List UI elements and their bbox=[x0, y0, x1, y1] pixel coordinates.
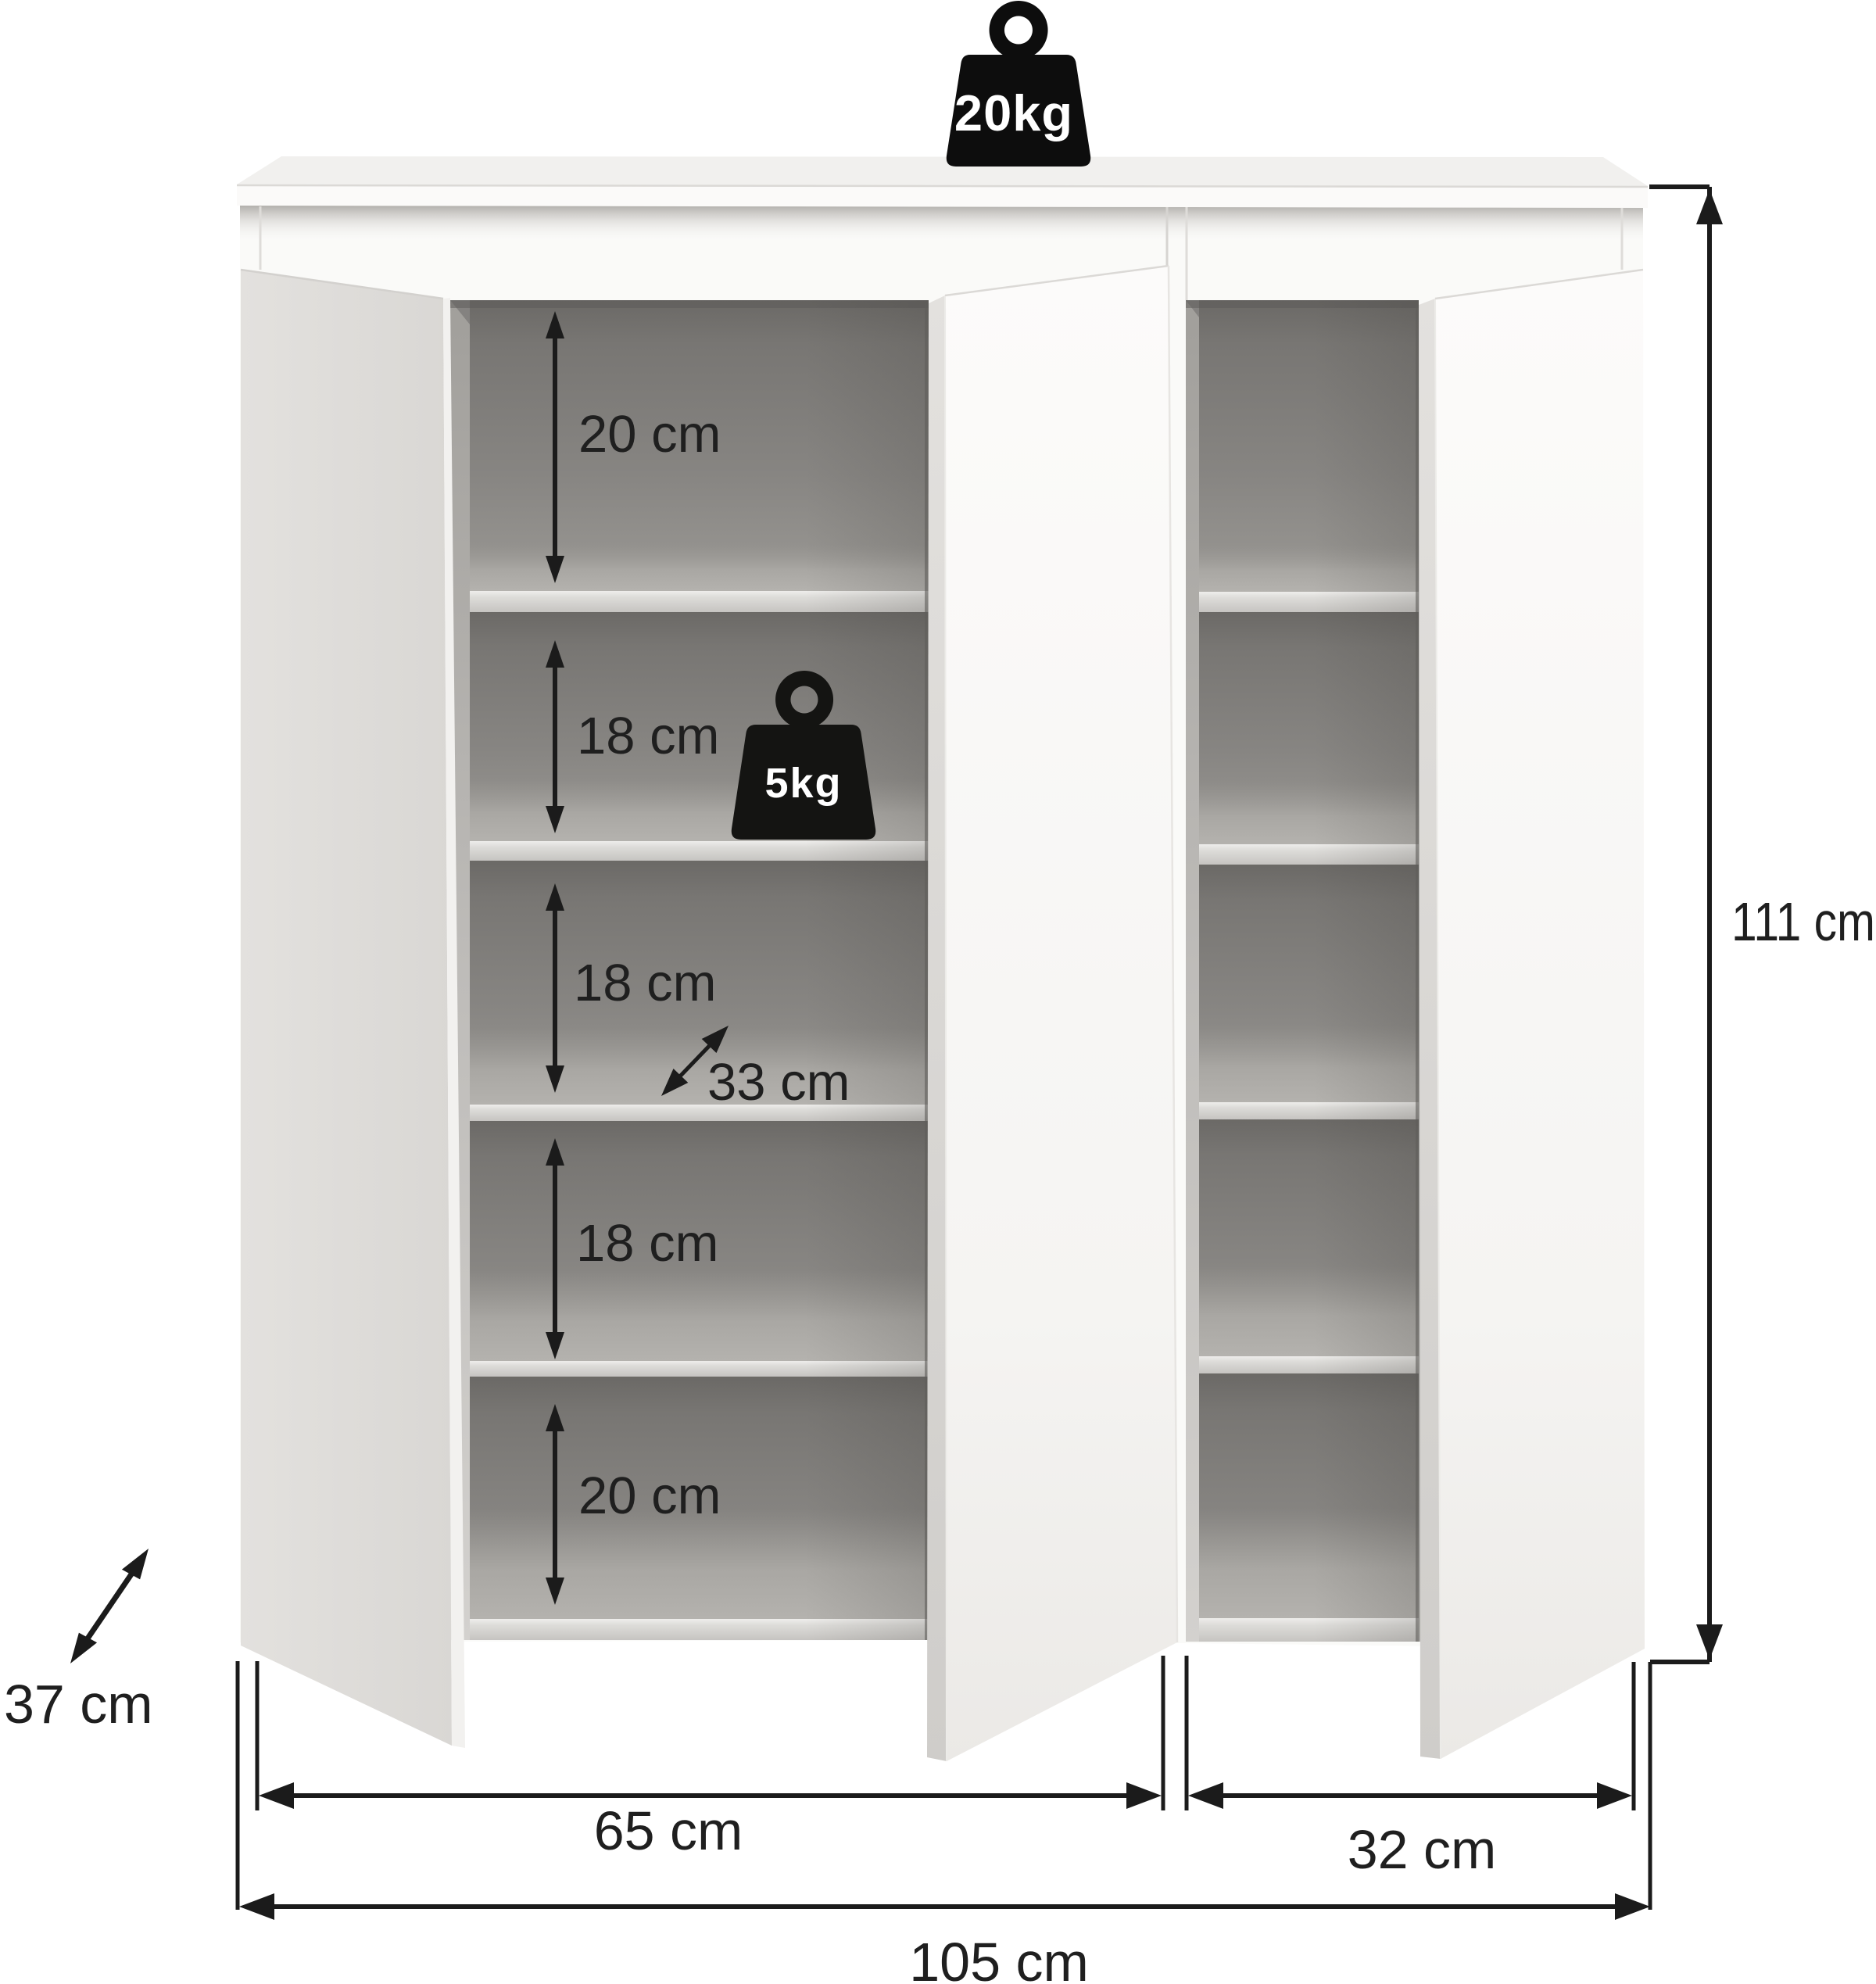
svg-text:33 cm: 33 cm bbox=[707, 1053, 850, 1112]
svg-text:37 cm: 37 cm bbox=[4, 1674, 153, 1735]
svg-text:65 cm: 65 cm bbox=[594, 1800, 743, 1861]
svg-text:111 cm: 111 cm bbox=[1731, 891, 1875, 952]
svg-text:18 cm: 18 cm bbox=[577, 707, 719, 765]
svg-text:5kg: 5kg bbox=[764, 760, 842, 807]
svg-text:32 cm: 32 cm bbox=[1348, 1819, 1497, 1880]
svg-text:20 cm: 20 cm bbox=[578, 1467, 721, 1525]
svg-text:18 cm: 18 cm bbox=[576, 1214, 718, 1273]
svg-text:18 cm: 18 cm bbox=[574, 954, 716, 1012]
svg-text:20 cm: 20 cm bbox=[578, 405, 721, 464]
svg-text:105 cm: 105 cm bbox=[909, 1932, 1089, 1984]
svg-text:20kg: 20kg bbox=[954, 84, 1073, 141]
